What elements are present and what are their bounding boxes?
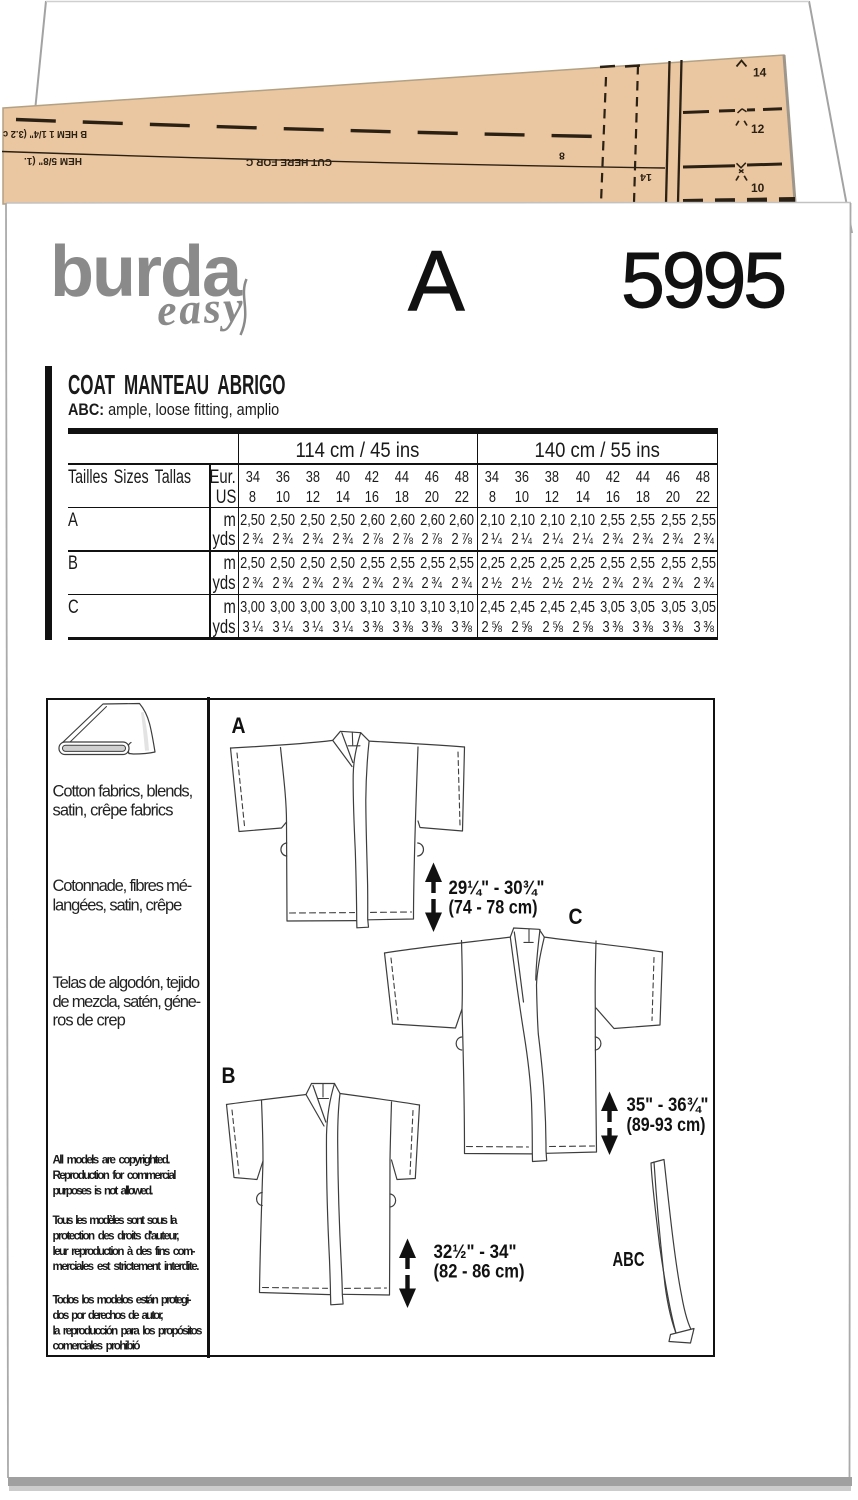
svg-text:dos por derechos de autor,: dos por derechos de autor, [52,1309,163,1322]
svg-text:Cotonnade, fibres mé-: Cotonnade, fibres mé- [52,877,192,895]
svg-text:(74 - 78 cm): (74 - 78 cm) [448,898,537,919]
svg-text:35" - 36¾": 35" - 36¾" [626,1095,708,1116]
svg-text:HEM 5/8" (1.: HEM 5/8" (1. [24,155,82,167]
svg-text:ABC: ABC [612,1249,644,1271]
svg-text:12: 12 [751,122,765,136]
svg-text:la reproducción para los propó: la reproducción para los propósitos [52,1324,202,1337]
svg-text:B HEM 1 1/4" (3.2 c: B HEM 1 1/4" (3.2 c [3,128,87,140]
svg-text:ros de crep: ros de crep [52,1012,125,1030]
svg-text:Reproduction for commercial: Reproduction for commercial [52,1169,176,1182]
svg-text:8: 8 [559,150,565,162]
svg-text:(89-93 cm): (89-93 cm) [626,1115,705,1136]
svg-text:leur reproduction à des fins c: leur reproduction à des fins com- [52,1245,195,1258]
svg-text:satin, crêpe fabrics: satin, crêpe fabrics [52,802,173,820]
svg-text:purposes is not allowed.: purposes is not allowed. [52,1184,153,1197]
svg-text:Todos los modelos están proteg: Todos los modelos están protegi- [52,1294,191,1307]
svg-text:Cotton fabrics, blends,: Cotton fabrics, blends, [52,783,193,801]
svg-text:32½" - 34": 32½" - 34" [433,1242,516,1263]
svg-text:protection des droits d'auteur: protection des droits d'auteur, [52,1229,179,1242]
svg-text:de mezcla, satén, géne-: de mezcla, satén, géne- [52,993,201,1011]
svg-text:CUT HERE FOR C: CUT HERE FOR C [246,156,332,168]
svg-text:merciales est strictement inte: merciales est strictement interdite. [52,1260,199,1273]
svg-text:Tous les modèles sont sous la: Tous les modèles sont sous la [52,1214,178,1227]
svg-text:(82 - 86 cm): (82 - 86 cm) [433,1262,524,1283]
svg-text:Telas de algodón, tejido: Telas de algodón, tejido [52,974,200,992]
svg-text:C: C [568,904,582,929]
svg-text:B: B [221,1063,235,1088]
svg-text:29¼" - 30¾": 29¼" - 30¾" [448,878,544,899]
svg-text:langées, satin, crêpe: langées, satin, crêpe [52,897,182,915]
svg-text:comerciales prohibió: comerciales prohibió [52,1340,140,1353]
svg-text:14: 14 [640,171,652,183]
svg-text:A: A [231,713,245,738]
svg-text:All models are copyrighted.: All models are copyrighted. [52,1154,170,1167]
svg-text:14: 14 [753,66,767,80]
svg-text:10: 10 [751,181,765,195]
